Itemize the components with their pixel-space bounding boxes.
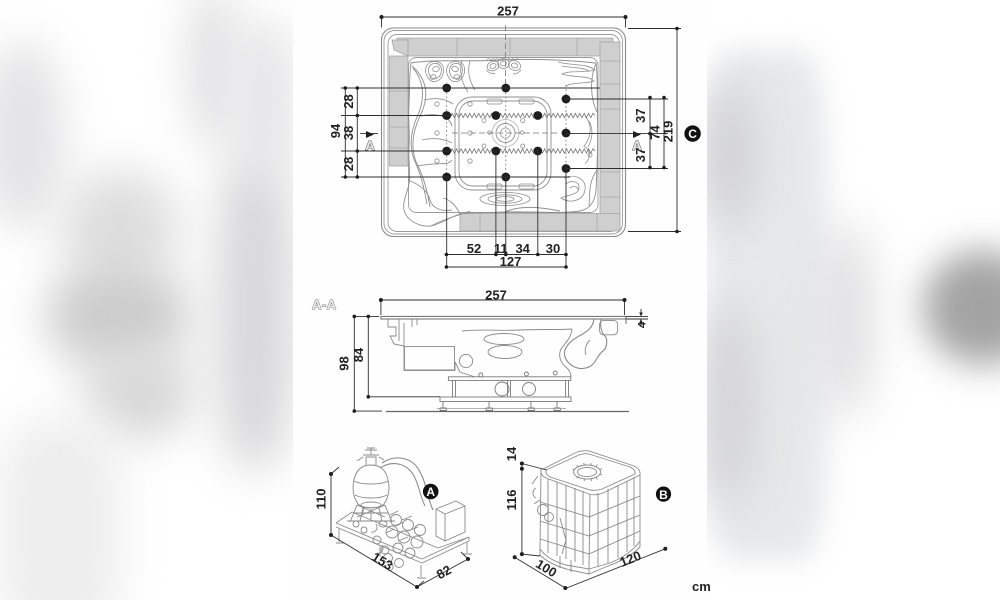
- svg-text:219: 219: [661, 121, 676, 143]
- svg-text:C: C: [688, 127, 697, 141]
- svg-text:257: 257: [485, 288, 507, 303]
- svg-text:120: 120: [617, 548, 643, 570]
- svg-text:28: 28: [341, 94, 356, 108]
- svg-text:127: 127: [500, 254, 522, 269]
- svg-text:A: A: [426, 485, 435, 499]
- svg-text:A: A: [632, 138, 642, 153]
- svg-text:A: A: [365, 138, 375, 153]
- svg-text:84: 84: [351, 347, 366, 362]
- svg-text:110: 110: [314, 489, 329, 510]
- svg-text:257: 257: [497, 4, 519, 19]
- svg-text:30: 30: [546, 241, 560, 256]
- svg-text:116: 116: [504, 490, 519, 511]
- svg-text:28: 28: [341, 157, 356, 171]
- svg-text:38: 38: [341, 126, 356, 140]
- svg-text:4: 4: [637, 321, 649, 328]
- svg-text:82: 82: [434, 562, 454, 582]
- svg-text:14: 14: [504, 446, 519, 461]
- svg-text:100: 100: [533, 556, 559, 580]
- svg-text:B: B: [659, 488, 668, 502]
- svg-text:cm: cm: [692, 579, 711, 594]
- svg-text:37: 37: [633, 108, 648, 122]
- svg-text:98: 98: [337, 356, 352, 370]
- svg-text:52: 52: [467, 241, 481, 256]
- svg-text:A-A: A-A: [312, 297, 337, 312]
